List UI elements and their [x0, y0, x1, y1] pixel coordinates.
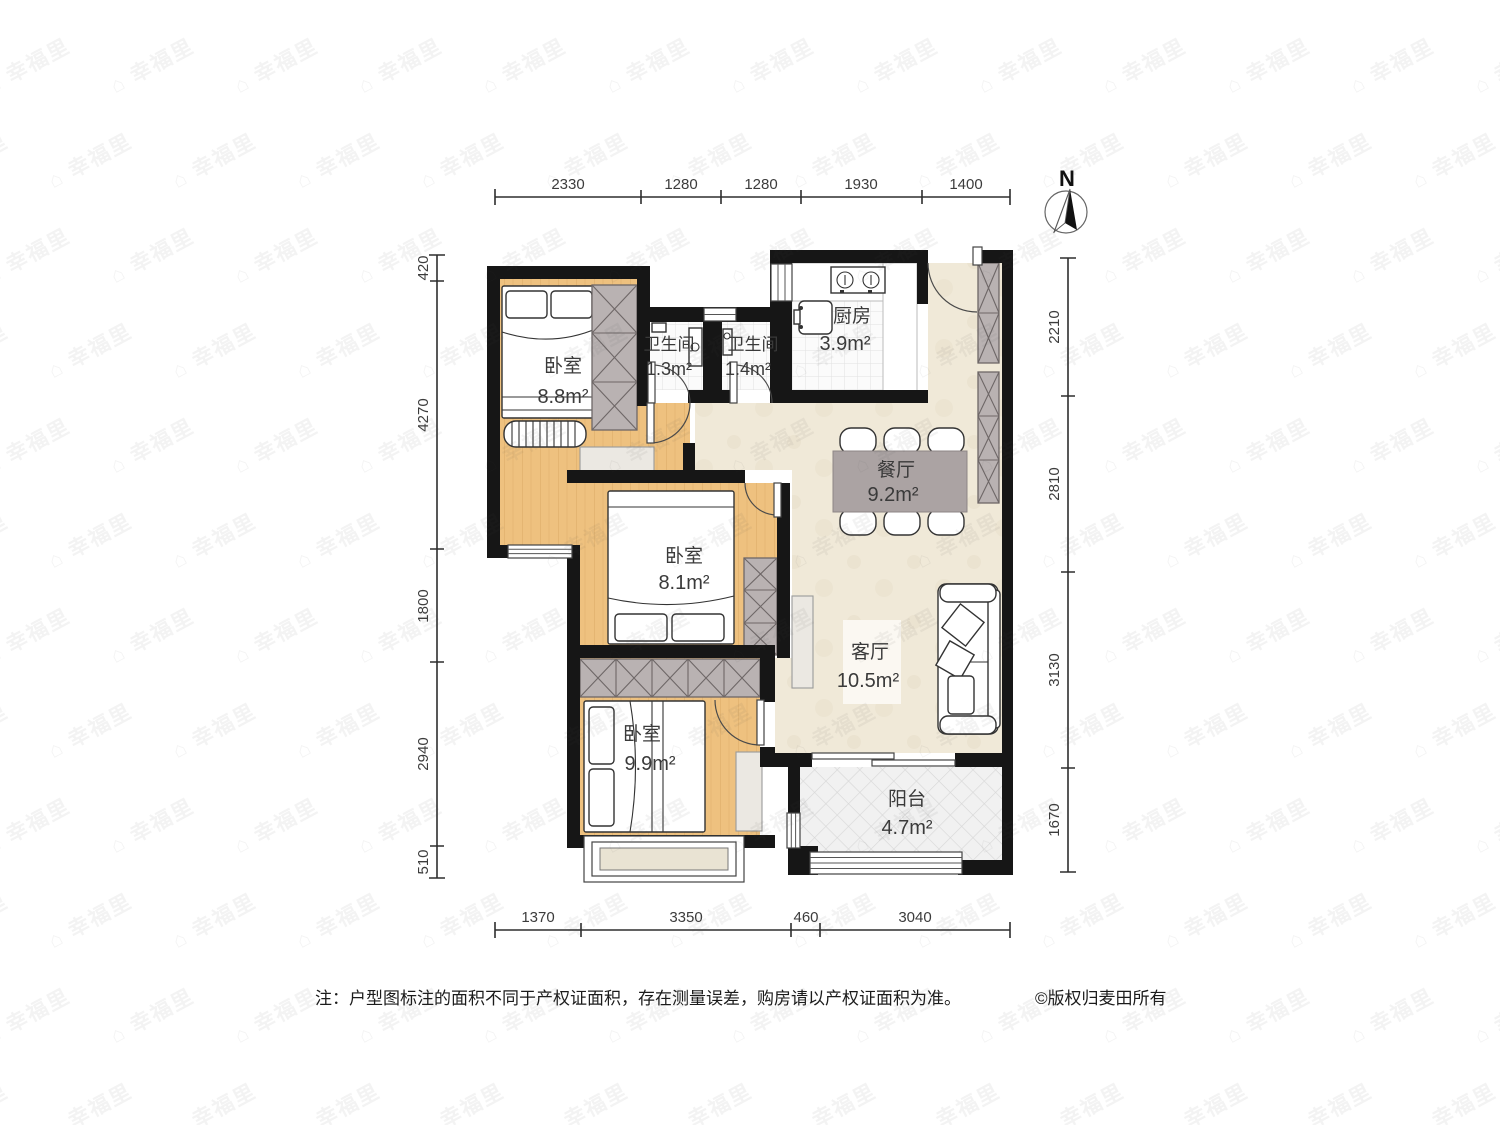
bed-bedroom2 [608, 491, 734, 644]
bedroom1-area: 8.8m² [537, 386, 588, 408]
dim-right-2: 3130 [1046, 653, 1063, 686]
bath2-area: 1.4m² [725, 359, 771, 379]
dimension-bottom: 1370 3350 460 3040 [495, 909, 1010, 938]
living-name: 客厅 [851, 641, 889, 663]
bedroom1-name: 卧室 [544, 355, 582, 377]
dim-left-1: 4270 [415, 398, 432, 431]
dim-left-4: 510 [415, 849, 432, 874]
dim-bottom-2: 460 [793, 909, 818, 926]
floor-plan-drawing: 卧室 8.8m² 卫生间 1.3m² 卫生间 1.4m² 厨房 3.9m² 餐厅… [0, 0, 1500, 1125]
dim-top-3: 1930 [844, 176, 877, 193]
floor-plan-page: 卧室 8.8m² 卫生间 1.3m² 卫生间 1.4m² 厨房 3.9m² 餐厅… [0, 0, 1500, 1125]
copyright-text: ©版权归麦田所有 [1035, 989, 1167, 1008]
bath1-name: 卫生间 [644, 335, 695, 354]
dim-left-2: 1800 [415, 589, 432, 622]
living-strip-floor [775, 658, 792, 753]
bench-bedroom1 [504, 421, 586, 447]
bedroom3-area: 9.9m² [624, 753, 675, 775]
bedroom3-name: 卧室 [623, 723, 661, 745]
stove-icon [831, 267, 885, 293]
bedroom2-name: 卧室 [665, 545, 703, 567]
dim-left-0: 420 [415, 255, 432, 280]
tv-stand [792, 596, 813, 688]
dining-set [833, 428, 967, 535]
wardrobe-bedroom3 [580, 659, 760, 697]
balcony-floor [800, 767, 1002, 860]
dimension-top: 2330 1280 1280 1930 1400 [495, 176, 1010, 205]
disclaimer-text: 注：户型图标注的面积不同于产权证面积，存在测量误差，购房请以产权证面积为准。 [315, 989, 961, 1008]
window-bedroom1 [508, 545, 572, 558]
living-area: 10.5m² [837, 670, 900, 692]
north-label: N [1059, 166, 1075, 191]
bath1-area: 1.3m² [646, 359, 692, 379]
dim-right-1: 2810 [1046, 467, 1063, 500]
north-compass-icon: N [1045, 166, 1087, 233]
dim-right-0: 2210 [1046, 310, 1063, 343]
bay-window-bedroom3 [584, 836, 744, 882]
sliding-door-balcony [812, 753, 955, 766]
wardrobe-bedroom1 [592, 285, 637, 430]
dim-left-3: 2940 [415, 737, 432, 770]
desk-bedroom3 [736, 752, 762, 831]
kitchen-name: 厨房 [833, 305, 871, 327]
footer-note: 注：户型图标注的面积不同于产权证面积，存在测量误差，购房请以产权证面积为准。 ©… [315, 989, 1167, 1008]
window-bath-north [704, 308, 736, 321]
window-balcony-west [787, 813, 800, 848]
dim-bottom-3: 3040 [898, 909, 931, 926]
window-balcony-south [810, 852, 962, 874]
cabinet-dining [978, 372, 999, 503]
balcony-area: 4.7m² [881, 817, 932, 839]
balcony-name: 阳台 [888, 788, 926, 810]
dim-bottom-0: 1370 [521, 909, 554, 926]
dining-name: 餐厅 [877, 459, 915, 481]
dimension-right: 2210 2810 3130 1670 [1046, 258, 1076, 872]
bedroom2-area: 8.1m² [658, 572, 709, 594]
dim-right-3: 1670 [1046, 803, 1063, 836]
dim-top-1: 1280 [664, 176, 697, 193]
bath2-name: 卫生间 [728, 335, 779, 354]
kitchen-area: 3.9m² [819, 333, 870, 355]
dim-bottom-1: 3350 [669, 909, 702, 926]
sink-icon [794, 301, 832, 334]
dim-top-2: 1280 [744, 176, 777, 193]
dimension-left: 420 4270 1800 2940 510 [415, 255, 445, 878]
hallway-floor [695, 403, 792, 470]
window-kitchen-west [771, 264, 792, 301]
dim-top-4: 1400 [949, 176, 982, 193]
wardrobe-bedroom2 [744, 558, 777, 655]
sofa [936, 584, 1000, 734]
dining-area: 9.2m² [867, 484, 918, 506]
dim-top-0: 2330 [551, 176, 584, 193]
cabinet-entry [978, 263, 999, 363]
